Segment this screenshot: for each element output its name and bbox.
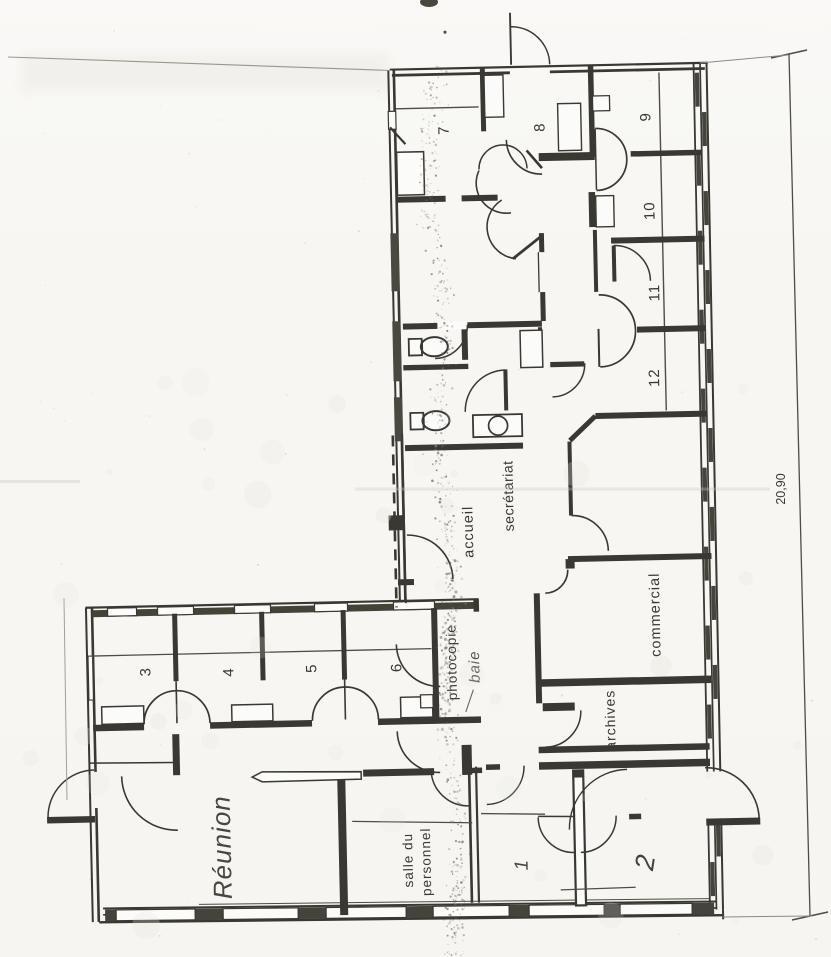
svg-text:7: 7 <box>436 125 453 135</box>
svg-text:20,90: 20,90 <box>774 473 788 504</box>
svg-text:4: 4 <box>220 667 237 677</box>
svg-text:11: 11 <box>646 284 663 302</box>
svg-text:accueil: accueil <box>460 506 477 558</box>
svg-text:9: 9 <box>637 112 654 122</box>
svg-text:10: 10 <box>641 201 658 220</box>
svg-text:3: 3 <box>137 667 154 677</box>
svg-text:salle du: salle du <box>400 833 416 888</box>
svg-text:8: 8 <box>531 122 548 132</box>
svg-text:1: 1 <box>512 859 533 871</box>
svg-text:commercial: commercial <box>647 572 665 656</box>
svg-text:Réunion: Réunion <box>206 795 238 899</box>
svg-text:secrétariat: secrétariat <box>499 460 517 531</box>
svg-text:personnel: personnel <box>418 827 434 896</box>
svg-text:5: 5 <box>303 663 320 673</box>
svg-text:archives: archives <box>601 690 618 750</box>
svg-text:6: 6 <box>388 663 405 673</box>
svg-text:12: 12 <box>646 368 663 387</box>
